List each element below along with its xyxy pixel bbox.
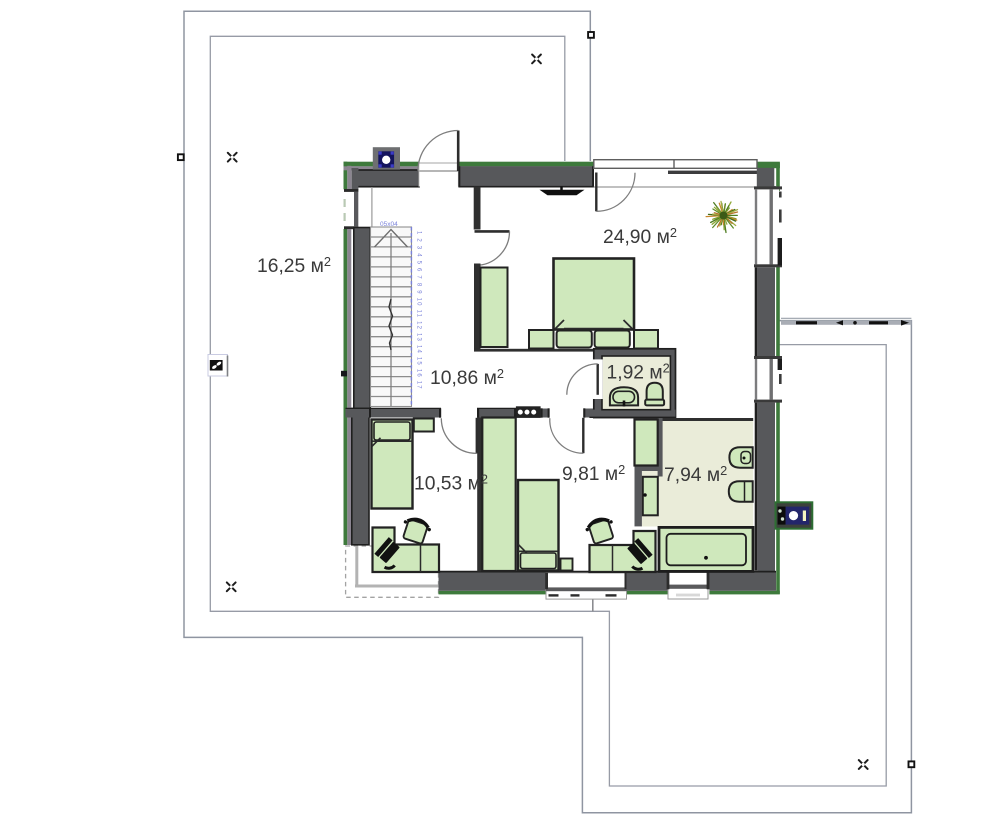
svg-text:7,94 м2: 7,94 м2 — [664, 463, 727, 486]
svg-text:16,25 м2: 16,25 м2 — [257, 254, 331, 277]
svg-text:1 2 3 4 5 6 7 8 9 10 11 12 13: 1 2 3 4 5 6 7 8 9 10 11 12 13 14 15 16 1… — [416, 231, 422, 390]
svg-text:1,92 м2: 1,92 м2 — [607, 360, 670, 383]
svg-text:9,81 м2: 9,81 м2 — [562, 462, 625, 485]
svg-text:05x04: 05x04 — [380, 221, 398, 228]
svg-text:10,53 м2: 10,53 м2 — [414, 471, 488, 494]
svg-text:10,86 м2: 10,86 м2 — [430, 366, 504, 389]
svg-text:24,90 м2: 24,90 м2 — [603, 225, 677, 248]
